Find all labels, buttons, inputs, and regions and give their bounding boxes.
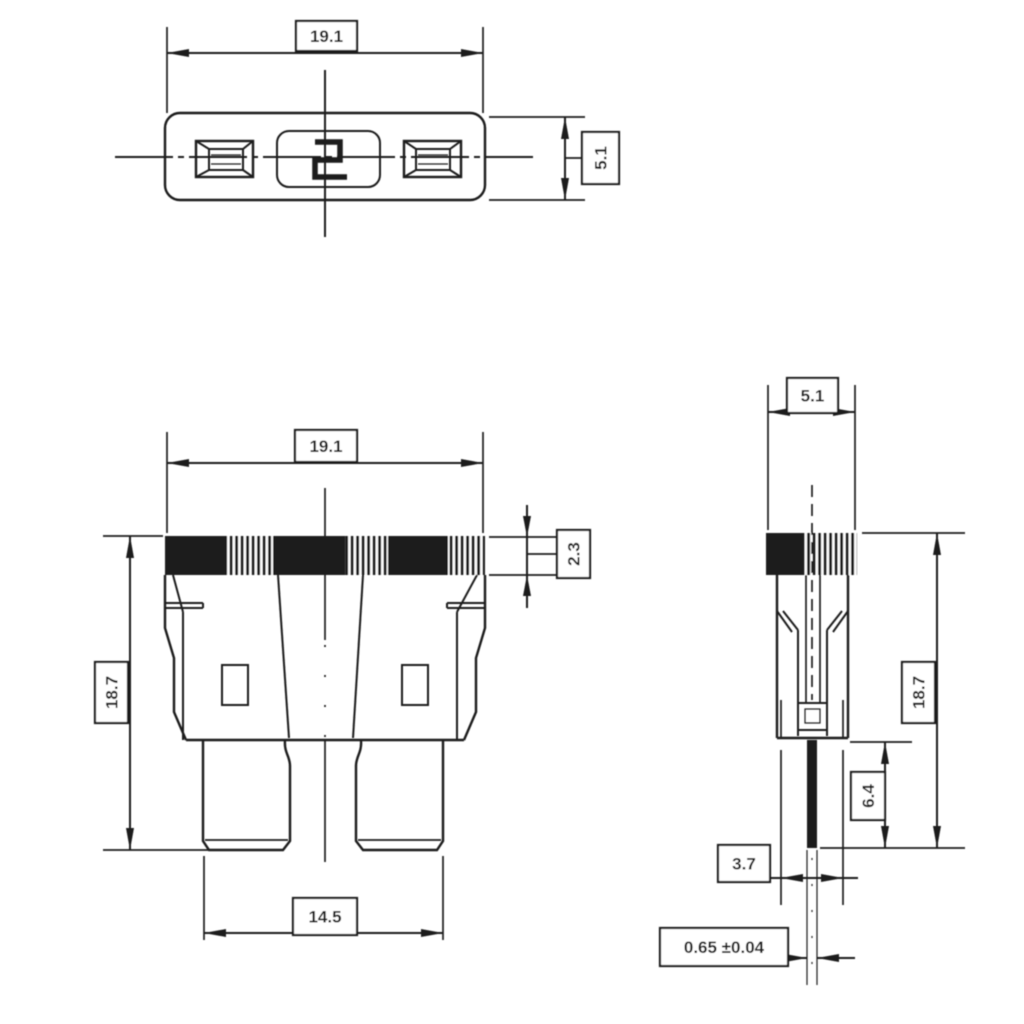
dim-label-blade-span: 14.5 xyxy=(308,907,341,926)
arrowhead-right xyxy=(821,874,843,882)
side-blade-terminal xyxy=(807,740,817,985)
body-width-dimension: 3.7 xyxy=(718,750,858,905)
arrowhead-left xyxy=(817,954,839,962)
arrowhead-up xyxy=(561,117,569,139)
arrowhead-up xyxy=(523,575,531,596)
dim-label-top-width: 19.1 xyxy=(310,27,343,46)
arrowhead-left xyxy=(204,929,226,937)
arrowhead-down xyxy=(933,826,941,848)
cap-band-dimension: 2.3 xyxy=(489,505,590,608)
fuse-technical-drawing: 19.1 xyxy=(0,0,1024,1024)
left-blade-terminal xyxy=(203,740,290,850)
arrowhead-up xyxy=(933,533,941,555)
side-view-height-dimension: 18.7 xyxy=(820,533,965,848)
blade-thickness-dimension: 0.65 ±0.04 xyxy=(660,928,855,966)
dim-label-blade-length: 6.4 xyxy=(859,784,878,808)
top-view: 19.1 xyxy=(115,21,619,237)
dim-label-cap-band: 2.3 xyxy=(564,542,583,566)
arrowhead-down xyxy=(126,828,134,850)
arrowhead-left xyxy=(167,459,189,467)
left-blade-slot xyxy=(196,141,253,177)
right-blade-slot xyxy=(404,141,461,177)
dim-label-front-width: 19.1 xyxy=(309,437,342,456)
arrowhead-right xyxy=(461,459,483,467)
element-profile-left xyxy=(278,575,289,738)
arrowhead-left xyxy=(167,49,189,57)
dim-label-top-height: 5.1 xyxy=(591,146,610,170)
drawing-sheet: 19.1 xyxy=(0,0,1024,1024)
dim-label-front-height: 18.7 xyxy=(102,676,121,709)
dim-label-body-width: 3.7 xyxy=(732,854,756,873)
housing-window-left xyxy=(222,665,248,705)
dim-label-side-width: 5.1 xyxy=(801,386,825,405)
side-view: 5.1 xyxy=(660,378,965,985)
front-view-height-dimension: 18.7 xyxy=(95,536,210,850)
element-profile-right xyxy=(353,575,363,738)
arrowhead-down xyxy=(881,826,889,848)
arrowhead-right xyxy=(461,49,483,57)
arrowhead-down xyxy=(561,178,569,200)
right-blade-terminal xyxy=(356,740,443,850)
front-view: 19.1 xyxy=(95,430,590,940)
blade-length-dimension: 6.4 xyxy=(850,742,912,848)
arrowhead-up xyxy=(126,536,134,558)
side-window-inner xyxy=(805,709,820,723)
arrowhead-right xyxy=(421,929,443,937)
blade-span-dimension: 14.5 xyxy=(204,856,443,940)
arrowhead-down xyxy=(523,516,531,537)
housing-window-right xyxy=(402,665,428,705)
dim-label-blade-thickness: 0.65 ±0.04 xyxy=(684,938,765,957)
fuse-element-glyph xyxy=(315,142,347,177)
dim-label-side-height: 18.7 xyxy=(909,676,928,709)
top-view-height-dimension: 5.1 xyxy=(489,117,619,200)
arrowhead-up xyxy=(881,742,889,764)
side-window-outer xyxy=(798,703,827,730)
arrowhead-left xyxy=(781,874,803,882)
